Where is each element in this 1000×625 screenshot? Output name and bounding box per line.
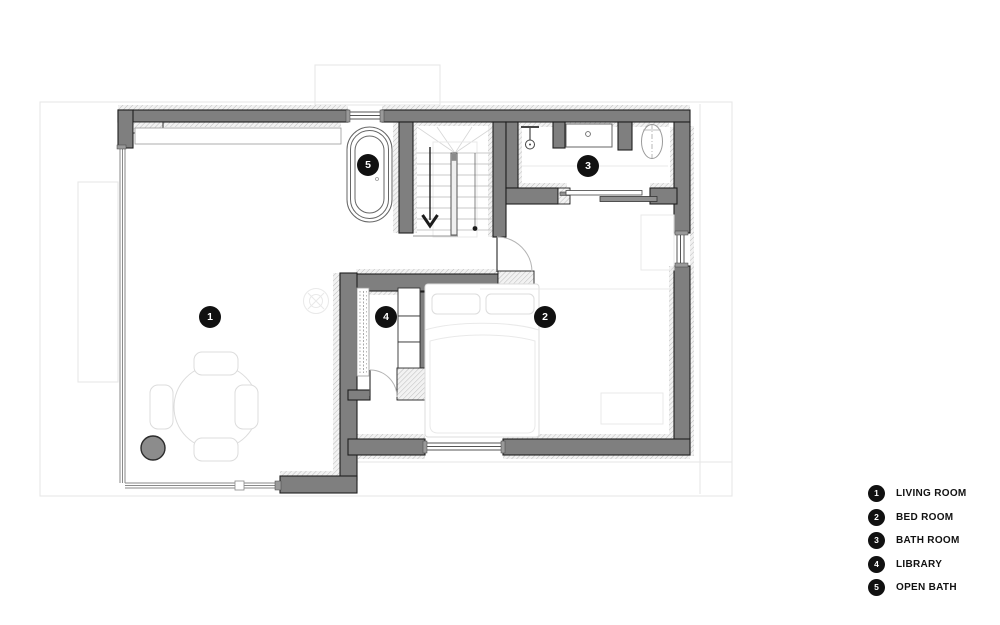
legend-label-5: OPEN BATH: [896, 582, 957, 593]
window-top: [346, 110, 384, 122]
bed: [425, 284, 539, 437]
legend-dot-2: 2: [868, 509, 885, 526]
legend: 1 LIVING ROOM 2 BED ROOM 3 BATH ROOM 4 L…: [868, 485, 967, 603]
room-marker-living-room: 1: [199, 306, 221, 328]
room-marker-library: 4: [375, 306, 397, 328]
bedroom-rug: [601, 393, 663, 424]
ceiling-light-icon: [304, 289, 329, 314]
legend-item-library: 4 LIBRARY: [868, 556, 967, 573]
sink: [566, 124, 612, 147]
floor-plan-page: 1 2 3 4 5 1 LIVING ROOM 2 BED ROOM 3 BAT…: [0, 0, 1000, 625]
legend-label-2: BED ROOM: [896, 512, 953, 523]
library-door: [370, 370, 397, 397]
legend-item-bath-room: 3 BATH ROOM: [868, 532, 967, 549]
column: [141, 436, 165, 460]
bookshelf: [357, 288, 369, 376]
builtin-counter: [135, 128, 341, 144]
legend-label-3: BATH ROOM: [896, 535, 960, 546]
legend-item-open-bath: 5 OPEN BATH: [868, 579, 967, 596]
window-right: [675, 231, 688, 267]
bedroom-door: [497, 237, 532, 272]
legend-label-1: LIVING ROOM: [896, 488, 967, 499]
room-marker-bed-room: 2: [534, 306, 556, 328]
library-shelves: [398, 288, 420, 368]
legend-dot-3: 3: [868, 532, 885, 549]
bedroom-closet-outline: [641, 215, 674, 270]
legend-item-living-room: 1 LIVING ROOM: [868, 485, 967, 502]
room-marker-bath-room: 3: [577, 155, 599, 177]
legend-dot-5: 5: [868, 579, 885, 596]
stair-path-dot: [473, 226, 478, 231]
legend-item-bed-room: 2 BED ROOM: [868, 509, 967, 526]
toilet: [642, 124, 663, 159]
legend-dot-1: 1: [868, 485, 885, 502]
shower: [521, 127, 539, 149]
legend-dot-4: 4: [868, 556, 885, 573]
bathroom-sliding-door: [560, 191, 657, 202]
dining-table: [150, 352, 258, 461]
window-bedroom-bottom: [423, 441, 505, 453]
legend-label-4: LIBRARY: [896, 559, 942, 570]
room-marker-open-bath: 5: [357, 154, 379, 176]
floor-plan-drawing: [0, 0, 1000, 625]
staircase: [413, 127, 492, 237]
